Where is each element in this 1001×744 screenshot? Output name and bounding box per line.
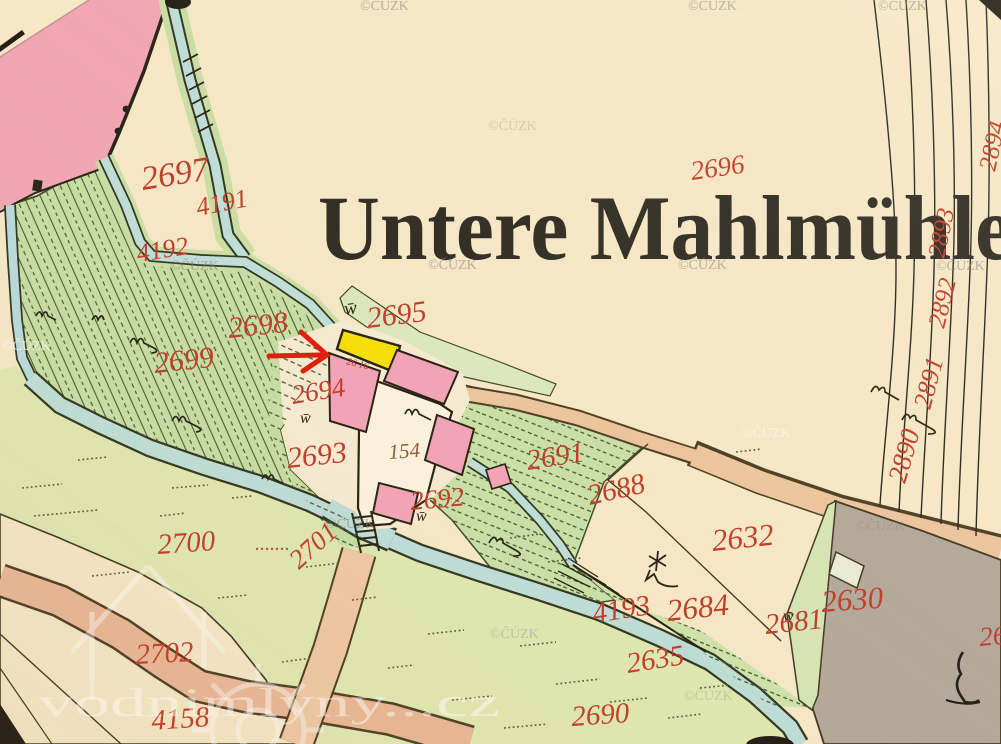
svg-text:2698: 2698 bbox=[226, 306, 289, 345]
svg-text:2690: 2690 bbox=[570, 697, 631, 733]
svg-text:2702: 2702 bbox=[135, 636, 195, 671]
svg-text:w̄: w̄ bbox=[783, 608, 794, 625]
svg-text:Untere Mahlmühle: Untere Mahlmühle bbox=[318, 177, 1001, 279]
svg-text:26: 26 bbox=[978, 620, 1001, 652]
svg-text:2684: 2684 bbox=[665, 587, 730, 628]
svg-text:2681: 2681 bbox=[763, 603, 824, 641]
svg-text:©ČÚZK: ©ČÚZK bbox=[936, 257, 985, 274]
svg-text:©ČÚZK: ©ČÚZK bbox=[688, 0, 737, 14]
svg-text:©ČÚZK: ©ČÚZK bbox=[2, 337, 51, 354]
svg-text:.......: ....... bbox=[255, 533, 290, 555]
svg-text:2699: 2699 bbox=[152, 341, 215, 380]
svg-text:154: 154 bbox=[388, 438, 422, 464]
svg-text:2632: 2632 bbox=[710, 517, 775, 558]
svg-text:©ČÚZK: ©ČÚZK bbox=[326, 515, 375, 532]
svg-text:w̄: w̄ bbox=[300, 410, 311, 427]
svg-text:©ČÚZK: ©ČÚZK bbox=[742, 424, 791, 441]
svg-text:w̄: w̄ bbox=[416, 508, 427, 525]
svg-text:©ČÚZK: ©ČÚZK bbox=[428, 256, 477, 273]
svg-text:©ČÚZK: ©ČÚZK bbox=[684, 687, 733, 704]
svg-text:©ČÚZK: ©ČÚZK bbox=[170, 257, 219, 274]
svg-text:2693: 2693 bbox=[285, 436, 348, 475]
svg-text:©ČÚZK: ©ČÚZK bbox=[856, 517, 905, 534]
svg-text:©ČÚZK: ©ČÚZK bbox=[360, 0, 409, 14]
svg-text:2630: 2630 bbox=[820, 580, 885, 619]
svg-text:2700: 2700 bbox=[156, 525, 217, 561]
svg-text:vodnimlyny...cz: vodnimlyny...cz bbox=[38, 680, 500, 725]
svg-text:©ČÚZK: ©ČÚZK bbox=[878, 0, 927, 14]
svg-text:©ČÚZK: ©ČÚZK bbox=[490, 625, 539, 642]
svg-text:©ČÚZK: ©ČÚZK bbox=[678, 256, 727, 273]
svg-text:©ČÚZK: ©ČÚZK bbox=[488, 117, 537, 134]
